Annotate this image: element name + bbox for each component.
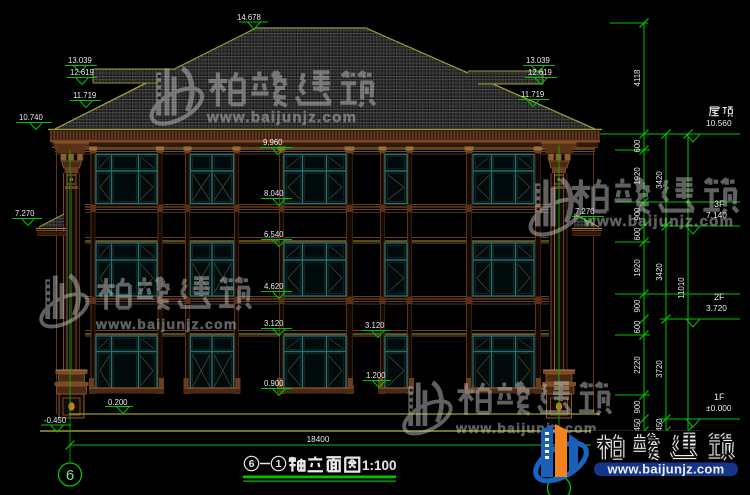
svg-text:450: 450	[633, 418, 642, 432]
svg-text:11.719: 11.719	[73, 91, 96, 100]
svg-text:6.540: 6.540	[264, 230, 284, 239]
svg-text:www.baijunjz.com: www.baijunjz.com	[206, 109, 357, 126]
svg-text:18400: 18400	[307, 435, 330, 444]
svg-text:900: 900	[633, 299, 642, 313]
svg-text:14.678: 14.678	[237, 13, 261, 22]
svg-text:12.619: 12.619	[528, 68, 552, 77]
svg-text:13.039: 13.039	[526, 56, 550, 65]
svg-text:12.619: 12.619	[70, 68, 94, 77]
svg-text:9.960: 9.960	[263, 138, 283, 147]
svg-text:3.720: 3.720	[706, 303, 727, 313]
svg-text:www.baijunjz.com: www.baijunjz.com	[455, 420, 598, 436]
svg-text:1920: 1920	[633, 259, 642, 277]
svg-text:600: 600	[633, 139, 642, 153]
svg-text:3.120: 3.120	[365, 321, 385, 330]
svg-text:11.719: 11.719	[521, 90, 544, 99]
svg-text:900: 900	[633, 400, 642, 414]
svg-text:10.740: 10.740	[19, 113, 44, 122]
svg-text:3720: 3720	[655, 360, 664, 378]
svg-text:0.900: 0.900	[264, 379, 284, 388]
svg-text:www.baijunjz.com: www.baijunjz.com	[607, 462, 725, 477]
svg-text:1:100: 1:100	[362, 458, 397, 473]
svg-text:8.040: 8.040	[264, 189, 284, 198]
svg-text:www.baijunjz.com: www.baijunjz.com	[95, 316, 238, 332]
svg-text:4118: 4118	[633, 70, 642, 87]
svg-text:1: 1	[276, 458, 282, 470]
svg-text:450: 450	[655, 418, 664, 432]
svg-text:600: 600	[633, 320, 642, 334]
svg-text:10.560: 10.560	[706, 118, 732, 128]
svg-text:1.200: 1.200	[366, 371, 386, 380]
svg-text:6: 6	[249, 458, 255, 470]
svg-text:2F: 2F	[714, 292, 725, 302]
svg-text:3.120: 3.120	[264, 319, 284, 328]
svg-text:6: 6	[66, 467, 74, 484]
svg-text:1F: 1F	[714, 392, 725, 402]
svg-text:±0.000: ±0.000	[706, 403, 732, 413]
svg-text:www.baijunjz.com: www.baijunjz.com	[583, 213, 734, 230]
svg-text:3420: 3420	[655, 263, 664, 281]
svg-text:2220: 2220	[633, 356, 642, 374]
svg-text:-0.450: -0.450	[44, 416, 67, 425]
svg-text:7.270: 7.270	[15, 209, 35, 218]
svg-text:11010: 11010	[677, 277, 686, 299]
svg-text:0.200: 0.200	[108, 398, 128, 407]
svg-text:4.620: 4.620	[264, 282, 284, 291]
svg-text:13.039: 13.039	[68, 56, 92, 65]
